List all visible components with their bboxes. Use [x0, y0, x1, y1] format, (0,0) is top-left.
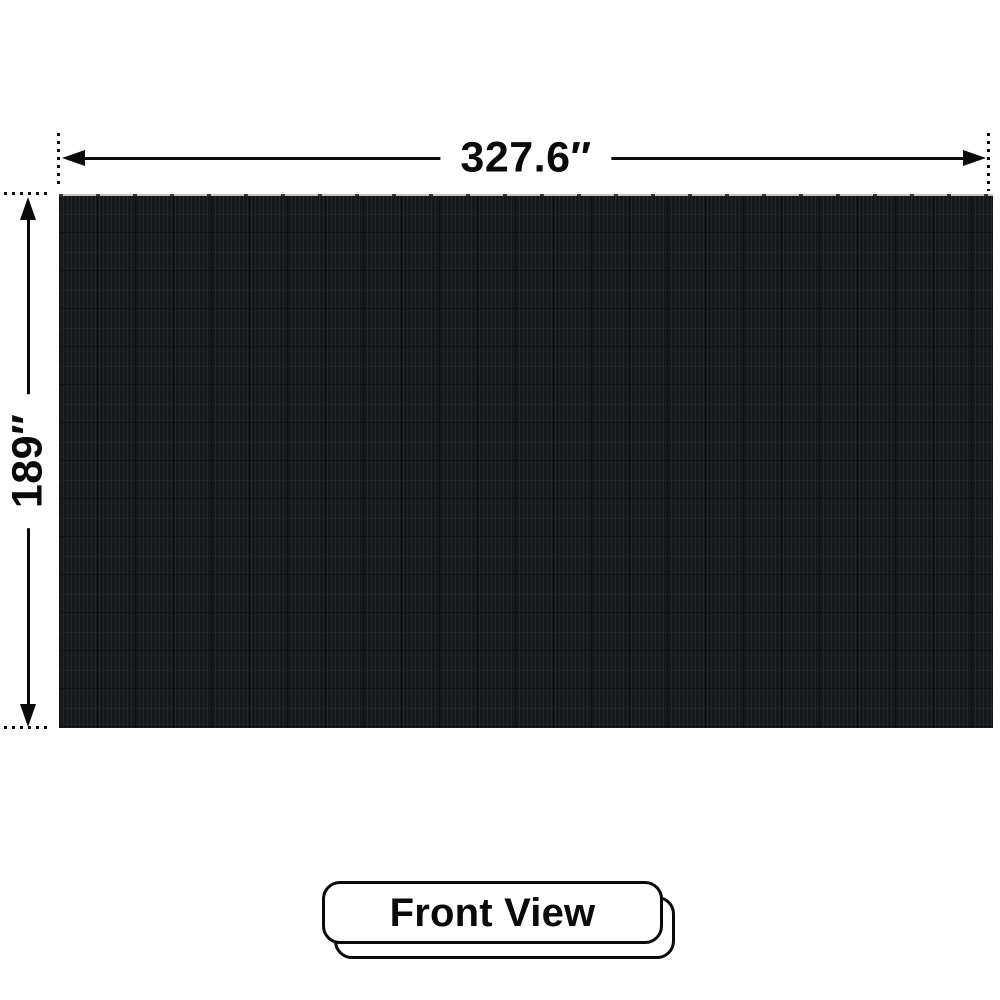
extension-line-top — [4, 192, 52, 195]
width-dimension-label: 327.6″ — [440, 133, 611, 184]
front-view-label: Front View — [390, 893, 596, 933]
arrow-right-icon — [963, 150, 986, 166]
extension-line-left — [57, 133, 60, 188]
arrow-left-icon — [62, 150, 85, 166]
arrow-down-icon — [20, 704, 36, 727]
height-dimension-label: 189″ — [3, 394, 54, 528]
led-panel-front-view — [59, 194, 993, 728]
extension-line-bottom — [4, 726, 52, 729]
diagram-canvas: 327.6″ 189″ Front View — [0, 0, 1000, 1000]
front-view-button[interactable]: Front View — [322, 881, 663, 944]
extension-line-right — [987, 133, 990, 191]
arrow-up-icon — [20, 197, 36, 220]
